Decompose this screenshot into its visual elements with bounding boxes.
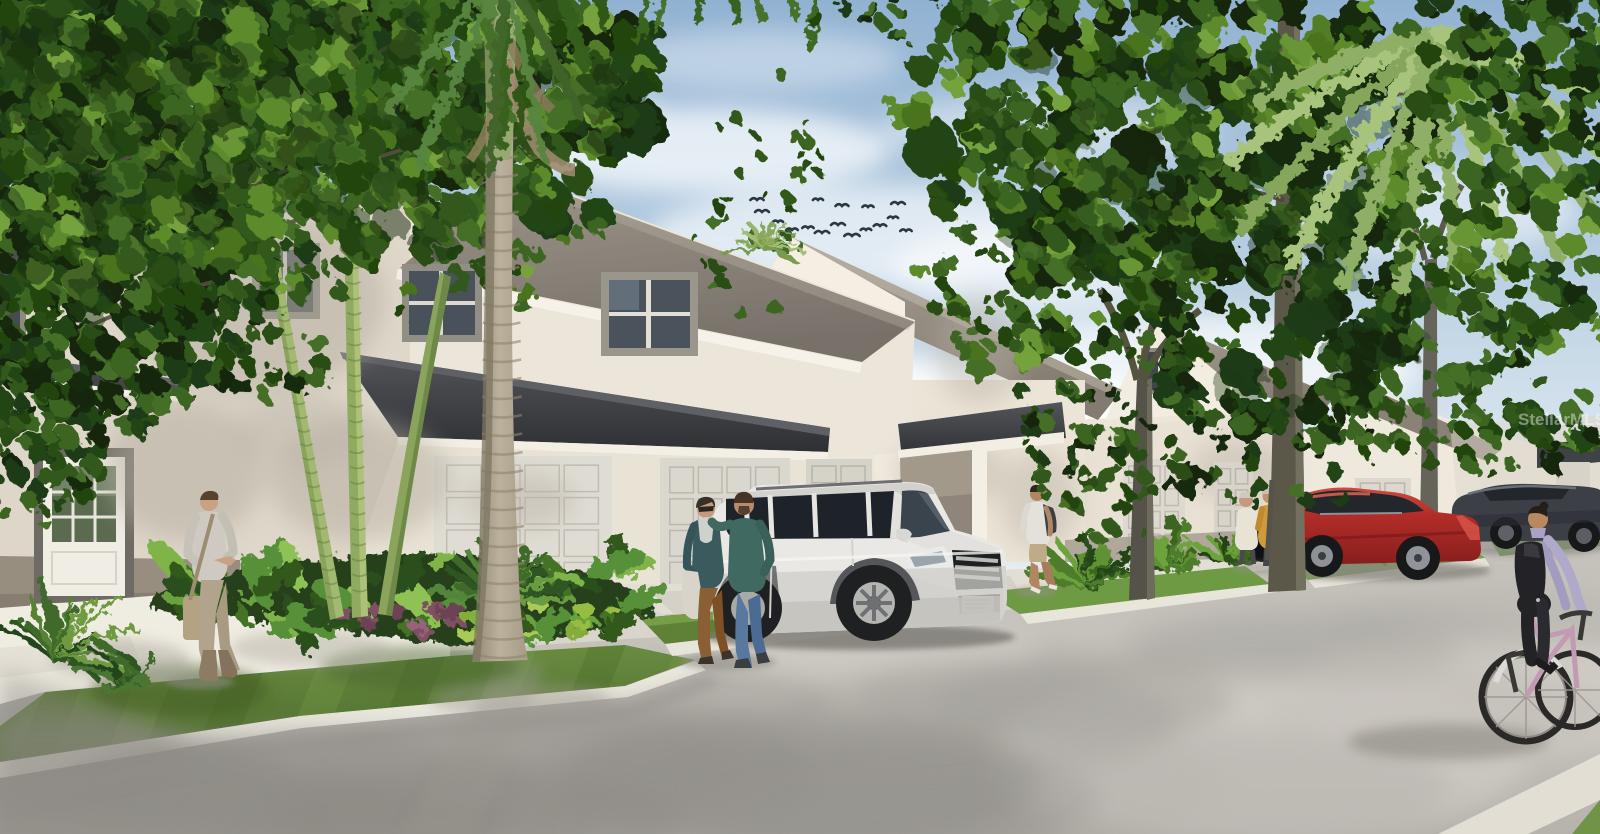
svg-text:StellarMLS: StellarMLS (1518, 410, 1600, 429)
